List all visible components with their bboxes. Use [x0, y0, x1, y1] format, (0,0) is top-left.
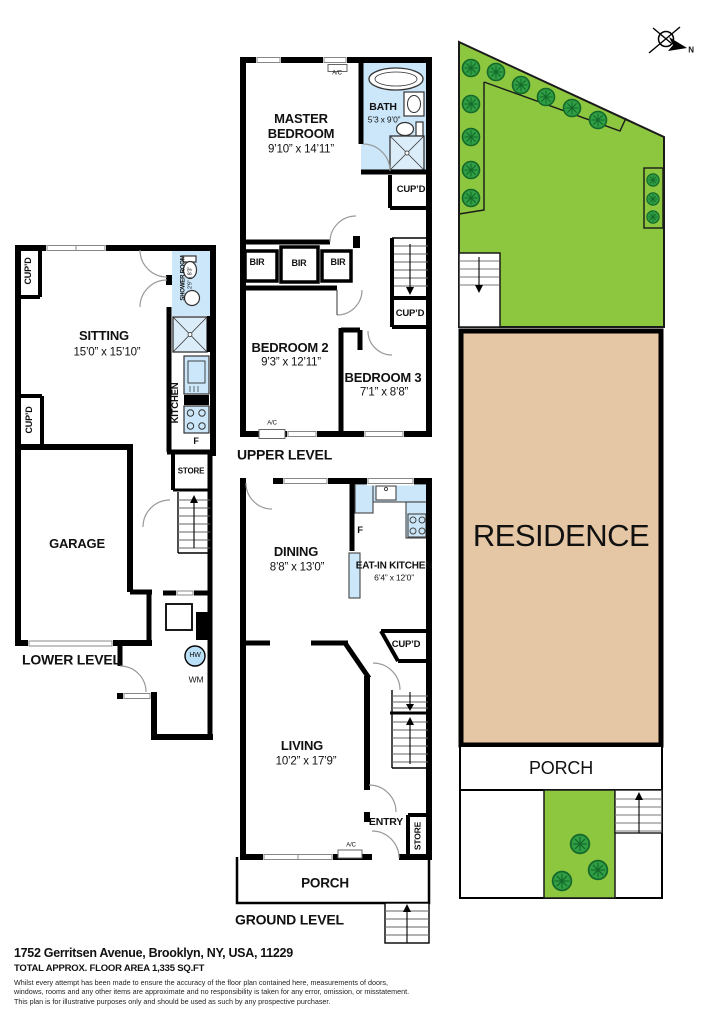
eatin-kitchen-label: EAT-IN KITCHEN	[356, 561, 432, 572]
floor-plan-graphic	[0, 0, 724, 1024]
residence-label: RESIDENCE	[473, 519, 649, 553]
living-label: LIVING	[281, 739, 323, 753]
lower-store-label: STORE	[178, 468, 204, 477]
floor-area-text: TOTAL APPROX. FLOOR AREA 1,335 SQ.FT	[14, 963, 714, 974]
upper-cupd-bath-label: CUP’D	[397, 185, 426, 195]
sitting-room-label: SITTING	[79, 329, 129, 343]
hot-water-label: HW	[189, 652, 200, 660]
ground-windows	[263, 477, 414, 862]
bedroom3-dims: 7’1” x 8’8”	[360, 387, 408, 400]
living-dims: 10’2” x 17’9”	[276, 756, 337, 769]
entry-label: ENTRY	[369, 817, 403, 829]
bir3-label: BIR	[331, 258, 346, 268]
eatin-kitchen-dims: 6’4” x 12’0”	[374, 573, 414, 582]
north-label: N	[688, 47, 694, 56]
upper-ac-bottom-label: A/C	[267, 421, 276, 428]
washing-machine-label: WM	[189, 675, 204, 684]
lower-kitchen-label: KITCHEN	[171, 383, 181, 424]
bedroom2-label: BEDROOM 2	[252, 341, 329, 355]
lower-cupd-top-label: CUP’D	[24, 257, 34, 284]
lower-fridge-label: F	[193, 437, 198, 447]
ground-store-label: STORE	[413, 822, 422, 850]
ground-stairs	[390, 690, 429, 768]
ground-door-arcs	[246, 483, 400, 858]
ground-porch	[237, 857, 429, 943]
lower-stairs	[178, 492, 210, 553]
garage-label: GARAGE	[49, 537, 105, 551]
garden-stairs	[459, 253, 500, 327]
upper-cupd-landing-label: CUP’D	[396, 309, 425, 319]
bath-dims: 5’3 x 9’0”	[368, 115, 401, 124]
kitchen-fixtures	[184, 356, 209, 433]
ground-ac-label: A/C	[346, 843, 355, 850]
upper-stairs	[392, 238, 429, 295]
disclaimer-text: Whilst every attempt has been made to en…	[14, 978, 714, 1006]
bedroom2-dims: 9’3” x 12’11”	[261, 357, 321, 370]
sitting-room-dims: 15’0” x 15’10”	[74, 347, 141, 360]
ground-level-plan	[237, 476, 429, 943]
master-bedroom-label-2: BEDROOM	[268, 127, 335, 141]
site-porch-label: PORCH	[529, 759, 593, 779]
upper-level-title: UPPER LEVEL	[237, 447, 332, 462]
lower-level-title: LOWER LEVEL	[22, 652, 121, 667]
ground-level-title: GROUND LEVEL	[235, 912, 344, 927]
dining-dims: 8’8” x 13’0”	[270, 562, 325, 575]
porch-stairs	[615, 790, 662, 833]
master-bedroom-label-1: MASTER	[274, 112, 328, 126]
dining-label: DINING	[274, 545, 318, 559]
address-text: 1752 Gerritsen Avenue, Brooklyn, NY, USA…	[14, 946, 714, 960]
upper-ac-top-label: A/C	[332, 71, 341, 78]
shower-tray	[173, 316, 213, 352]
ground-porch-label: PORCH	[301, 877, 349, 892]
bath-label: BATH	[369, 102, 397, 114]
footer: 1752 Gerritsen Avenue, Brooklyn, NY, USA…	[14, 946, 714, 1006]
north-arrow-icon	[649, 27, 687, 53]
floor-plan-page: CUP’D SITTING 15’0” x 15’10” SHOWER ROOM…	[0, 0, 724, 1024]
bir1-label: BIR	[250, 258, 265, 268]
ground-cupd-label: CUP’D	[392, 640, 421, 650]
master-bedroom-dims: 9’10” x 14’11”	[268, 144, 334, 157]
shower-room-label: SHOWER ROOM 2’9” x 8’3”	[181, 255, 194, 300]
ground-fridge-label: F	[357, 526, 363, 536]
bedroom3-label: BEDROOM 3	[345, 371, 422, 385]
lower-cupd-bottom-label: CUP’D	[25, 406, 35, 433]
bir2-label: BIR	[292, 259, 307, 269]
